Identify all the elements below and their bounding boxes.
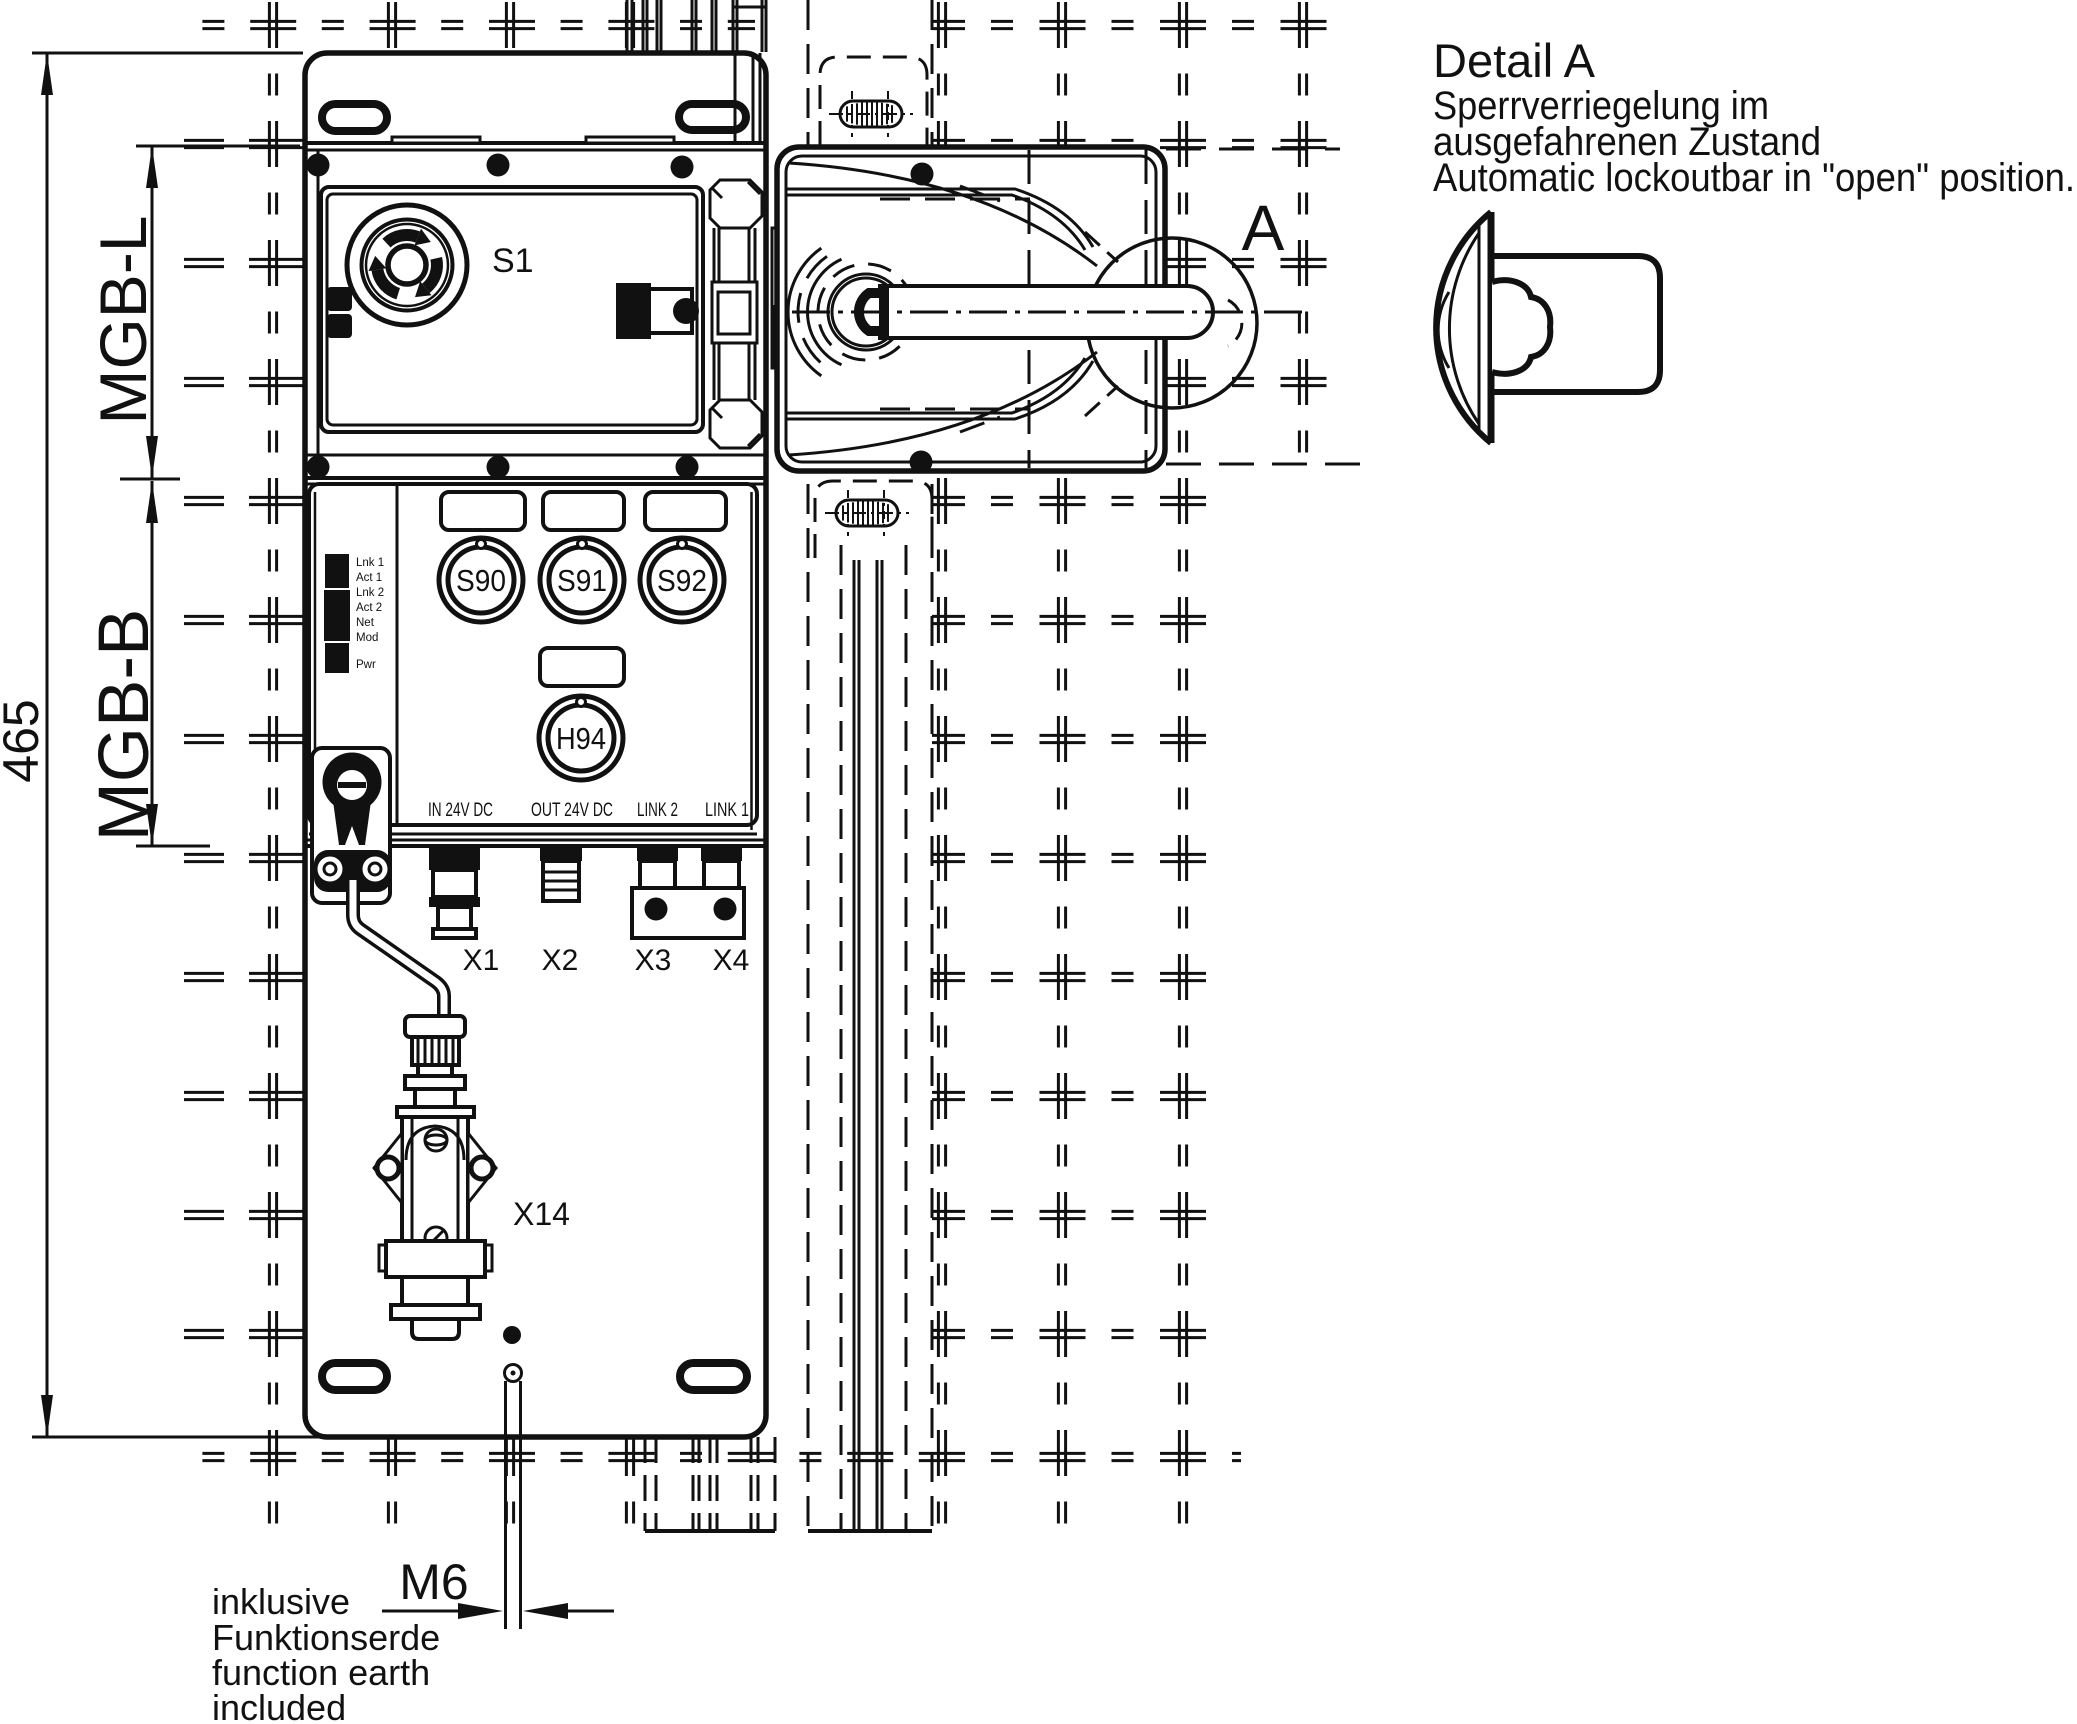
svg-text:LINK 1: LINK 1 [705, 800, 749, 821]
svg-text:inklusive: inklusive [212, 1581, 350, 1622]
svg-text:S1: S1 [492, 242, 534, 280]
svg-text:Act 1: Act 1 [356, 572, 382, 584]
svg-text:A: A [1242, 192, 1285, 264]
svg-text:IN 24V DC: IN 24V DC [428, 800, 493, 821]
svg-text:X3: X3 [635, 944, 672, 977]
svg-text:M6: M6 [399, 1554, 468, 1610]
svg-text:Lnk 2: Lnk 2 [356, 587, 384, 599]
svg-text:Automatic lockoutbar in "open": Automatic lockoutbar in "open" position. [1433, 156, 2075, 200]
svg-text:S92: S92 [657, 563, 707, 598]
svg-text:X1: X1 [463, 944, 500, 977]
svg-text:MGB-B: MGB-B [85, 609, 164, 842]
svg-text:Pwr: Pwr [356, 659, 376, 671]
svg-text:OUT 24V DC: OUT 24V DC [531, 800, 613, 821]
svg-text:H94: H94 [556, 721, 606, 756]
svg-text:X4: X4 [713, 944, 750, 977]
svg-text:Act 2: Act 2 [356, 602, 382, 614]
svg-text:Detail A: Detail A [1433, 34, 1596, 87]
svg-text:included: included [212, 1687, 346, 1724]
svg-text:Net: Net [356, 617, 375, 629]
svg-text:Mod: Mod [356, 632, 378, 644]
svg-text:S90: S90 [456, 563, 506, 598]
svg-text:S91: S91 [557, 563, 607, 598]
svg-text:465: 465 [0, 699, 49, 782]
svg-text:Lnk 1: Lnk 1 [356, 557, 384, 569]
svg-text:MGB-L: MGB-L [86, 215, 160, 424]
svg-text:LINK 2: LINK 2 [637, 800, 678, 821]
svg-text:X14: X14 [513, 1196, 570, 1232]
svg-text:X2: X2 [542, 944, 579, 977]
